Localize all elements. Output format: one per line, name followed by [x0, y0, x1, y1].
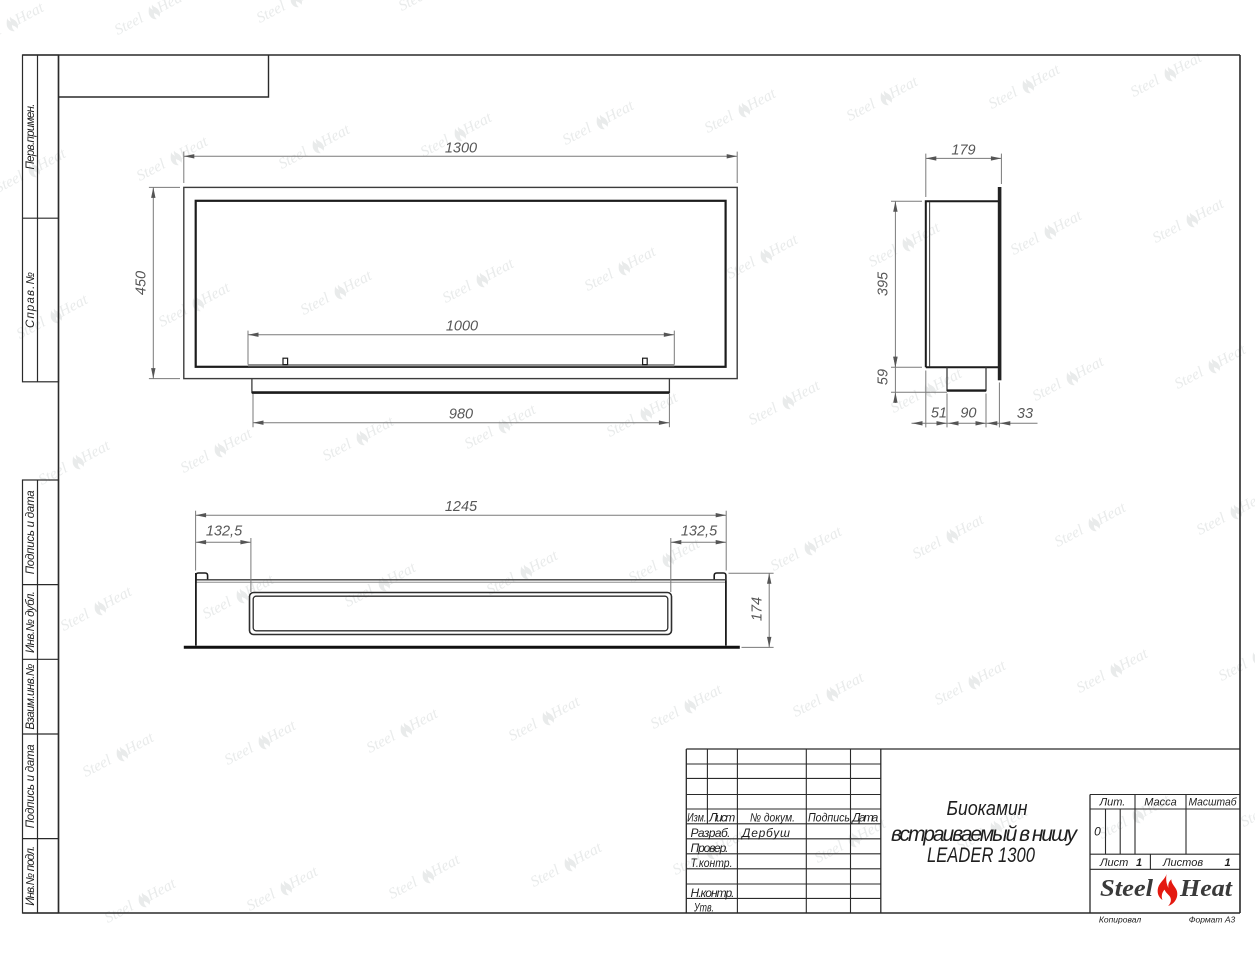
svg-text:Лист: Лист	[708, 811, 735, 825]
svg-text:Копировал: Копировал	[1099, 915, 1141, 925]
svg-text:Инв.№ подл.: Инв.№ подл.	[25, 846, 37, 906]
svg-text:1: 1	[1136, 857, 1142, 869]
svg-text:1000: 1000	[446, 319, 478, 335]
svg-text:Перв.примен.: Перв.примен.	[25, 104, 37, 170]
svg-text:Изм.: Изм.	[687, 811, 706, 825]
svg-text:132,5: 132,5	[206, 524, 243, 540]
svg-text:встраиваемый в нишу: встраиваемый в нишу	[891, 823, 1079, 846]
svg-text:Формат А3: Формат А3	[1189, 915, 1236, 925]
svg-text:Н.контр.: Н.контр.	[691, 886, 735, 900]
svg-text:980: 980	[449, 407, 473, 423]
svg-text:№ докум.: № докум.	[750, 811, 795, 825]
svg-text:Инв.№ дубл.: Инв.№ дубл.	[25, 591, 37, 653]
svg-text:90: 90	[960, 405, 976, 421]
svg-text:Утв.: Утв.	[693, 900, 714, 914]
svg-text:Справ.№: Справ.№	[25, 271, 37, 328]
svg-text:1: 1	[1224, 857, 1230, 869]
svg-text:Дербуш: Дербуш	[740, 826, 790, 840]
svg-text:Лит.: Лит.	[1099, 797, 1126, 809]
svg-text:59: 59	[876, 369, 892, 385]
svg-text:Масса: Масса	[1144, 797, 1177, 809]
svg-text:Лист: Лист	[1099, 857, 1128, 869]
svg-text:Подпись: Подпись	[808, 811, 850, 825]
svg-text:Подпись и дата: Подпись и дата	[25, 490, 37, 574]
svg-text:Разраб.: Разраб.	[691, 826, 731, 840]
svg-text:450: 450	[134, 271, 150, 295]
svg-text:132,5: 132,5	[681, 524, 718, 540]
svg-text:174: 174	[750, 597, 766, 621]
svg-text:Провер.: Провер.	[691, 841, 729, 855]
svg-text:Подпись и дата: Подпись и дата	[25, 744, 37, 828]
svg-text:LEADER 1300: LEADER 1300	[927, 844, 1035, 867]
svg-text:0: 0	[1094, 825, 1101, 839]
svg-text:Т.контр.: Т.контр.	[691, 856, 733, 870]
svg-text:179: 179	[951, 142, 975, 158]
svg-text:395: 395	[876, 271, 892, 296]
svg-text:1300: 1300	[445, 140, 477, 156]
svg-text:Листов: Листов	[1162, 857, 1203, 869]
svg-text:Биокамин: Биокамин	[947, 798, 1028, 820]
svg-text:Дата: Дата	[850, 811, 878, 825]
svg-text:Масштаб: Масштаб	[1189, 797, 1238, 809]
svg-text:Steel: Steel	[1100, 875, 1153, 902]
svg-text:Взаим.инв.№: Взаим.инв.№	[25, 663, 37, 730]
svg-text:33: 33	[1017, 406, 1033, 422]
svg-text:1245: 1245	[445, 499, 478, 515]
svg-text:Heat: Heat	[1179, 875, 1233, 902]
svg-text:51: 51	[931, 405, 947, 421]
